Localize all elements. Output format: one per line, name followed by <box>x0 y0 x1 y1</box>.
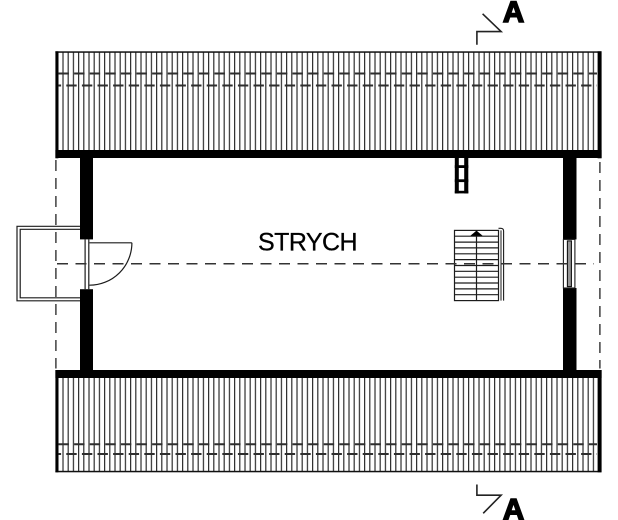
svg-text:A: A <box>503 0 524 29</box>
svg-text:STRYCH: STRYCH <box>258 229 357 257</box>
svg-text:A: A <box>503 493 524 520</box>
